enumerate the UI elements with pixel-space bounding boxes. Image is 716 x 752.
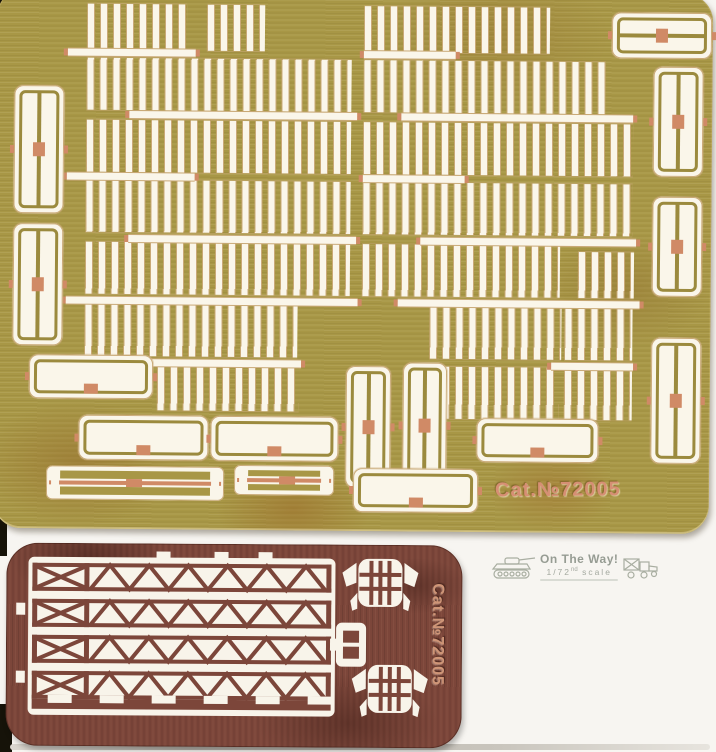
comb-ladder-part bbox=[86, 58, 351, 112]
horizontal-frame-part bbox=[78, 415, 208, 461]
comb-ladder-part bbox=[564, 308, 632, 361]
castellation-notch bbox=[152, 695, 176, 703]
castellation-notch bbox=[308, 696, 332, 704]
comb-ladder-part bbox=[86, 120, 351, 174]
rod-boss bbox=[279, 476, 295, 484]
connector-spine-cut bbox=[139, 359, 301, 367]
rod-end bbox=[239, 469, 247, 491]
comb-ladder-part bbox=[362, 182, 632, 236]
logo-scale: 1/72nd scale bbox=[546, 567, 611, 577]
tank-sketch-icon bbox=[490, 553, 536, 581]
bracket-part bbox=[330, 623, 366, 667]
comb-ladder-part bbox=[84, 304, 297, 358]
brass-etch-sheet: Cat.№72005 bbox=[0, 0, 713, 534]
grille-part bbox=[352, 665, 428, 717]
frame-tab bbox=[33, 142, 45, 156]
scanned-photo-etch-sheets: Cat.№72005 Cat.№72005 On The Way! 1/72nd… bbox=[0, 0, 716, 752]
frame-tab bbox=[408, 497, 422, 507]
truck-sketch-icon bbox=[622, 552, 660, 582]
axle-rod-part bbox=[46, 465, 224, 501]
edge-tab-cut bbox=[157, 552, 171, 560]
frame-tab bbox=[136, 445, 150, 455]
comb-ladder-part bbox=[578, 252, 634, 298]
frame-tab bbox=[670, 394, 682, 408]
vertical-frame-part bbox=[13, 85, 64, 213]
castellation-notch bbox=[100, 695, 124, 703]
grille-part bbox=[342, 559, 418, 611]
logo-title: On The Way! bbox=[540, 553, 618, 566]
horizontal-frame-part bbox=[612, 12, 712, 59]
edge-tab-cut bbox=[215, 552, 229, 560]
logo-text: On The Way! 1/72nd scale bbox=[540, 553, 618, 580]
logo-fine-print-line bbox=[540, 579, 618, 581]
comb-ladder-part bbox=[429, 367, 559, 420]
comb-ladder-part bbox=[429, 307, 561, 360]
frame-tab bbox=[267, 446, 281, 456]
frame-tab bbox=[671, 240, 683, 254]
frame-tab bbox=[362, 420, 374, 434]
frame-tab bbox=[656, 29, 668, 43]
connector-spine-cut bbox=[129, 111, 357, 120]
copper-etched-parts bbox=[5, 543, 462, 749]
comb-ladder-part bbox=[85, 242, 350, 296]
comb-ladder-part bbox=[207, 5, 265, 52]
comb-ladder-part bbox=[157, 364, 299, 411]
comb-ladder-part bbox=[362, 244, 560, 298]
rod-end bbox=[51, 469, 59, 495]
comb-ladder-part bbox=[363, 60, 605, 114]
brass-catalog-label: Cat.№72005 bbox=[495, 478, 621, 502]
scale-logo: On The Way! 1/72nd scale bbox=[490, 546, 682, 588]
copper-catalog-label: Cat.№72005 bbox=[428, 583, 447, 715]
horizontal-frame-part bbox=[476, 418, 598, 463]
comb-ladder-part bbox=[363, 122, 633, 176]
connector-spine-cut bbox=[67, 172, 195, 180]
connector-spine-cut bbox=[363, 175, 465, 183]
frame-tab bbox=[419, 419, 431, 433]
vertical-frame-part bbox=[12, 223, 63, 345]
horizontal-frame-part bbox=[29, 354, 153, 399]
copper-etch-sheet: Cat.№72005 bbox=[5, 543, 462, 749]
connector-spine-cut bbox=[364, 51, 456, 59]
frame-tab bbox=[32, 277, 44, 291]
rod-boss bbox=[126, 479, 142, 487]
comb-ladder-part bbox=[87, 4, 187, 51]
frame-tab bbox=[672, 115, 684, 129]
comb-ladder-part bbox=[364, 6, 550, 54]
comb-ladder-part bbox=[564, 368, 632, 421]
horizontal-frame-part bbox=[353, 468, 478, 513]
rod-end bbox=[321, 470, 329, 492]
axle-rod-part bbox=[234, 465, 334, 496]
brass-etched-parts bbox=[0, 0, 713, 534]
connector-spine-cut bbox=[551, 363, 633, 371]
connector-spine-cut bbox=[68, 49, 196, 57]
frame-tab bbox=[84, 384, 98, 394]
castellation-notch bbox=[256, 696, 280, 704]
vertical-frame-part bbox=[653, 67, 704, 177]
edge-tab-cut bbox=[16, 671, 25, 683]
edge-tab-cut bbox=[259, 552, 273, 560]
vertical-frame-part bbox=[652, 197, 703, 297]
connector-spine-cut bbox=[401, 113, 633, 122]
castellated-strip-part bbox=[32, 699, 331, 711]
vertical-frame-part bbox=[650, 338, 701, 464]
horizontal-frame-part bbox=[210, 416, 338, 462]
castellation-notch bbox=[204, 696, 228, 704]
castellation-notch bbox=[48, 695, 72, 703]
rod-end bbox=[211, 471, 219, 497]
comb-ladder-part bbox=[85, 180, 350, 234]
frame-tab bbox=[530, 448, 544, 458]
edge-tab-cut bbox=[16, 603, 25, 615]
